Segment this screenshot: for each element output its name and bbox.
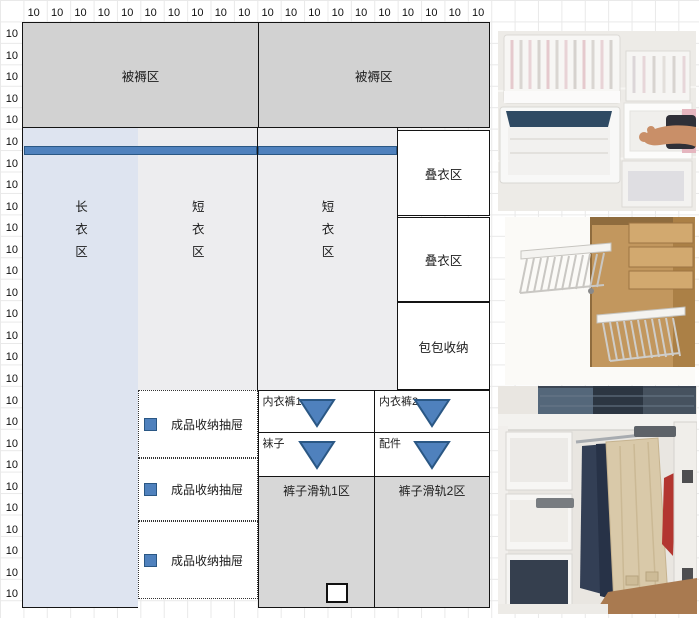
- ruler-label: 10: [6, 525, 18, 536]
- hanging-rod-left: [24, 146, 257, 155]
- ruler-label: 10: [238, 8, 250, 19]
- ruler-label: 10: [191, 8, 203, 19]
- ruler-label: 10: [74, 8, 86, 19]
- ruler-label: 10: [28, 8, 40, 19]
- ruler-label: 10: [378, 8, 390, 19]
- ruler-label: 10: [6, 589, 18, 600]
- zone-label: 被褥区: [355, 66, 393, 85]
- ruler-label: 10: [355, 8, 367, 19]
- bedding-zone-right: 被褥区: [258, 22, 491, 128]
- ruler-label: 10: [6, 482, 18, 493]
- ruler-label: 10: [6, 266, 18, 277]
- down-triangle-icon: [413, 398, 451, 428]
- ruler-label: 10: [6, 94, 18, 105]
- ruler-label: 10: [425, 8, 437, 19]
- ruler-label: 10: [308, 8, 320, 19]
- pants-rail-zone-1: 裤子滑轨1区: [258, 476, 376, 608]
- ruler-label: 10: [6, 115, 18, 126]
- zone-label: 长衣区: [71, 200, 90, 268]
- ruler-label: 10: [6, 29, 18, 40]
- ruler-label: 10: [121, 8, 133, 19]
- ruler-label: 10: [145, 8, 157, 19]
- drawer-marker-icon: [144, 418, 157, 431]
- ruler-label: 10: [261, 8, 273, 19]
- ruler-label: 10: [6, 439, 18, 450]
- ruler-label: 10: [6, 137, 18, 148]
- down-triangle-icon: [298, 440, 336, 470]
- ruler-label: 10: [6, 396, 18, 407]
- drawer-label: 成品收纳抽屉: [171, 552, 243, 569]
- zone-label: 短衣区: [188, 200, 207, 268]
- ruler-label: 10: [6, 51, 18, 62]
- wardrobe-plan-canvas: 1010101010101010101010101010101010101010…: [0, 0, 699, 618]
- zone-label: 叠衣区: [425, 164, 463, 183]
- ruler-label: 10: [6, 159, 18, 170]
- zone-label: 包包收纳: [418, 337, 468, 356]
- small-box-outline: [326, 583, 348, 603]
- ruler-label: 10: [285, 8, 297, 19]
- wardrobe-layout-diagram: 被褥区 被褥区 长衣区 短衣区 短衣区 叠衣区 叠衣区 包包收纳 内衣裤1: [22, 22, 490, 608]
- ruler-label: 10: [6, 503, 18, 514]
- ruler-label: 10: [98, 8, 110, 19]
- folded-clothes-zone-2: 叠衣区: [397, 217, 490, 302]
- drawer-marker-icon: [144, 554, 157, 567]
- left-ruler: 1010101010101010101010101010101010101010…: [0, 24, 20, 606]
- down-triangle-icon: [298, 398, 336, 428]
- zone-label: 裤子滑轨2区: [375, 482, 489, 499]
- ruler-label: 10: [6, 568, 18, 579]
- ruler-label: 10: [168, 8, 180, 19]
- down-triangle-icon: [413, 440, 451, 470]
- cell-label: 袜子: [263, 435, 285, 451]
- short-clothes-zone-2: 短衣区: [258, 128, 398, 390]
- drawer-marker-icon: [144, 483, 157, 496]
- zone-label: 叠衣区: [425, 250, 463, 269]
- ruler-label: 10: [402, 8, 414, 19]
- folded-clothes-zone-1: 叠衣区: [397, 130, 490, 216]
- ruler-label: 10: [6, 202, 18, 213]
- storage-drawer-box-3: 成品收纳抽屉: [138, 521, 258, 599]
- accessories-drawer: 配件: [374, 432, 490, 478]
- storage-drawer-box-2: 成品收纳抽屉: [138, 458, 258, 521]
- photo-pullout-hanger-racks: [505, 217, 695, 385]
- top-ruler: 1010101010101010101010101010101010101010: [22, 5, 490, 21]
- ruler-label: 10: [6, 72, 18, 83]
- ruler-label: 10: [472, 8, 484, 19]
- drawer-label: 成品收纳抽屉: [171, 416, 243, 433]
- ruler-label: 10: [6, 546, 18, 557]
- ruler-label: 10: [6, 374, 18, 385]
- ruler-label: 10: [51, 8, 63, 19]
- cell-label: 内衣裤1: [263, 393, 302, 409]
- pants-rail-zone-2: 裤子滑轨2区: [374, 476, 490, 608]
- socks-drawer: 袜子: [258, 432, 376, 478]
- ruler-label: 10: [6, 352, 18, 363]
- bedding-zone-left: 被褥区: [22, 22, 259, 128]
- ruler-label: 10: [6, 288, 18, 299]
- ruler-label: 10: [6, 180, 18, 191]
- underwear-drawer-1: 内衣裤1: [258, 390, 376, 433]
- ruler-label: 10: [6, 223, 18, 234]
- ruler-label: 10: [332, 8, 344, 19]
- short-clothes-zone-1: 短衣区: [138, 128, 258, 390]
- ruler-label: 10: [6, 331, 18, 342]
- ruler-label: 10: [6, 245, 18, 256]
- hanging-rod-right: [258, 146, 397, 155]
- storage-drawer-box-1: 成品收纳抽屉: [138, 390, 258, 458]
- ruler-label: 10: [449, 8, 461, 19]
- ruler-label: 10: [6, 417, 18, 428]
- cell-label: 配件: [379, 435, 401, 451]
- bag-storage-zone: 包包收纳: [397, 302, 490, 390]
- drawer-label: 成品收纳抽屉: [171, 481, 243, 498]
- zone-label: 短衣区: [318, 200, 337, 268]
- ruler-label: 10: [6, 309, 18, 320]
- zone-label: 裤子滑轨1区: [259, 482, 375, 499]
- ruler-label: 10: [6, 460, 18, 471]
- long-clothes-zone: 长衣区: [22, 128, 138, 608]
- ruler-label: 10: [215, 8, 227, 19]
- photo-storage-drawers: [498, 31, 696, 211]
- underwear-drawer-2: 内衣裤2: [374, 390, 490, 433]
- photo-pants-closet: [498, 386, 697, 614]
- zone-label: 被褥区: [122, 66, 160, 85]
